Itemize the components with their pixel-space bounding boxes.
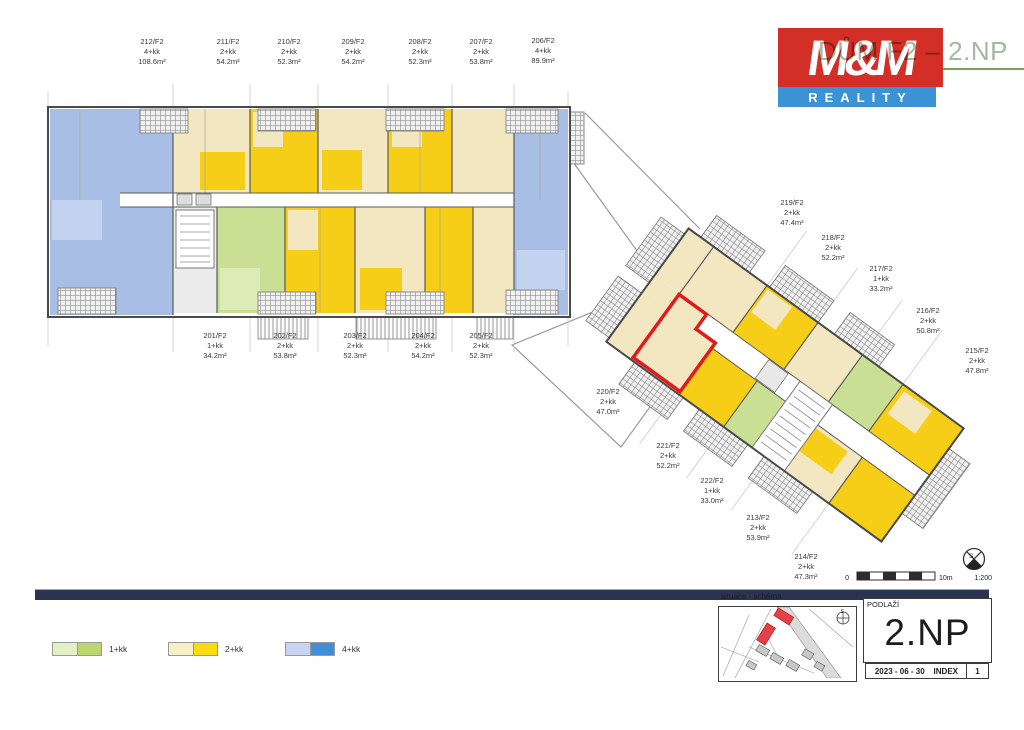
svg-text:S: S	[969, 553, 974, 560]
unit-label-215: 215/F22+kk47.8m²	[965, 346, 988, 376]
unit-label-204: 204/F22+kk54.2m²	[411, 331, 434, 361]
unit-label-208: 208/F22+kk52.3m²	[408, 37, 431, 67]
page-title: DŮM F2 – 2.NP	[818, 36, 1008, 67]
svg-text:1:200: 1:200	[974, 575, 992, 582]
floor-value: 2.NP	[864, 612, 991, 654]
scale-bar: 0 10m 1:200	[845, 572, 992, 582]
building-f2-west-wing	[48, 84, 570, 352]
unit-label-219: 219/F22+kk47.4m²	[780, 198, 803, 228]
unit-label-222: 222/F21+kk33.0m²	[700, 476, 723, 506]
legend-label-4kk: 4+kk	[342, 644, 360, 654]
unit-label-201: 201/F21+kk34.2m²	[203, 331, 226, 361]
unit-label-210: 210/F22+kk52.3m²	[277, 37, 300, 67]
unit-label-209: 209/F22+kk54.2m²	[341, 37, 364, 67]
legend-item-2kk: 2+kk	[168, 642, 243, 656]
revision-date: 2023 - 06 - 30	[866, 664, 934, 678]
site-map-thumbnail: S	[718, 606, 857, 682]
svg-text:10m: 10m	[939, 575, 953, 582]
unit-label-211: 211/F22+kk54.2m²	[216, 37, 239, 67]
site-map-drawing: S	[719, 607, 853, 678]
unit-label-203: 203/F22+kk52.3m²	[343, 331, 366, 361]
unit-label-202: 202/F22+kk53.8m²	[273, 331, 296, 361]
unit-label-207: 207/F22+kk53.8m²	[469, 37, 492, 67]
logo-banner: REALITY	[778, 87, 936, 107]
footer-divider-bar	[35, 589, 989, 600]
legend-item-1kk: 1+kk	[52, 642, 127, 656]
index-value: 1	[966, 664, 988, 678]
floorplan-page: 0 10m 1:200 S 212/F24+kk108.6m² 211/F22+…	[0, 0, 1024, 730]
legend-swatch-4kk	[285, 642, 335, 656]
floor-block-label: PODLAŽÍ	[867, 600, 899, 609]
legend-swatch-1kk	[52, 642, 102, 656]
unit-label-220: 220/F22+kk47.0m²	[596, 387, 619, 417]
unit-label-213: 213/F22+kk53.9m²	[746, 513, 769, 543]
site-map-compass-icon: S	[837, 609, 849, 624]
unit-label-221: 221/F22+kk52.2m²	[656, 441, 679, 471]
index-label: INDEX	[934, 664, 966, 678]
legend-label-1kk: 1+kk	[109, 644, 127, 654]
svg-text:0: 0	[845, 575, 849, 582]
unit-label-206: 206/F24+kk89.9m²	[531, 36, 554, 66]
legend-label-2kk: 2+kk	[225, 644, 243, 654]
unit-label-205: 205/F22+kk52.3m²	[469, 331, 492, 361]
floor-title-block: PODLAŽÍ 2.NP	[863, 598, 992, 663]
legend-swatch-2kk	[168, 642, 218, 656]
revision-row: 2023 - 06 - 30 INDEX 1	[865, 663, 989, 679]
unit-label-217: 217/F21+kk33.2m²	[869, 264, 892, 294]
unit-label-214: 214/F22+kk47.3m²	[794, 552, 817, 582]
unit-label-212: 212/F24+kk108.6m²	[138, 37, 166, 67]
unit-label-216: 216/F22+kk50.8m²	[916, 306, 939, 336]
logo-reality-text: REALITY	[801, 90, 913, 105]
site-map-label: situace - schéma	[721, 592, 781, 601]
north-arrow-icon: S	[964, 549, 985, 570]
legend-item-4kk: 4+kk	[285, 642, 360, 656]
unit-label-218: 218/F22+kk52.2m²	[821, 233, 844, 263]
